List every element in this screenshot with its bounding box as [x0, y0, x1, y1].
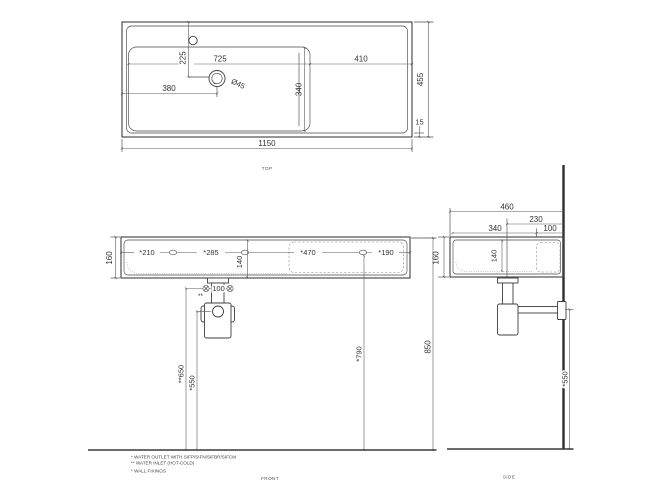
dim-label-550-side: *550	[561, 371, 570, 386]
top-view: 1150 455 15 725 410 340 380 225 Ø45 TOP	[122, 22, 434, 172]
trap-nut-front	[213, 306, 224, 317]
dim-label-340-top: 340	[295, 82, 304, 96]
bowl-bottom-stipple-side	[456, 262, 532, 272]
note-wall-fixings: * WALL FIXINGS	[131, 469, 166, 474]
trap-tailpipe-side	[503, 283, 514, 304]
note-water-outlet: * WATER OUTLET WITH SIFP/SIFN/SIFBR/SIFC…	[131, 455, 236, 460]
top-view-label: TOP	[262, 166, 273, 172]
hidden-shelf-line	[289, 242, 404, 273]
side-view-label: SIDE	[503, 475, 515, 481]
dim-label-140-side: 140	[490, 250, 499, 263]
dim-label-470: *470	[300, 248, 315, 257]
dim-label-550-front: *550	[188, 375, 197, 390]
front-view: 100 ** 160 *210 *285 *470 *190 140 **650…	[88, 237, 437, 482]
drain-flange	[209, 71, 225, 87]
dim-label-15: 15	[415, 118, 423, 127]
dim-label-140-front: 140	[235, 256, 244, 269]
wall-fixing-hole	[169, 250, 176, 255]
dim-label-230: 230	[529, 215, 543, 224]
dim-label-225: 225	[179, 51, 188, 65]
dim-label-210: *210	[139, 248, 154, 257]
notes-block: * WATER OUTLET WITH SIFP/SIFN/SIFBR/SIFC…	[131, 455, 236, 474]
wall-outlet-flange	[558, 302, 567, 320]
dim-label-drain-diameter: Ø45	[230, 77, 247, 91]
basin-rim-line	[127, 26, 408, 133]
water-inlet-symbol-left	[203, 285, 209, 291]
drain-flange-front	[208, 278, 229, 283]
tap-hole	[189, 36, 197, 44]
basin-outer-outline	[122, 22, 412, 137]
washbasin-technical-drawing: 1150 455 15 725 410 340 380 225 Ø45 TOP	[0, 0, 667, 500]
drain-flange-side	[498, 278, 519, 283]
dim-label-340-side: 340	[488, 224, 502, 233]
drawing-sheet: 1150 455 15 725 410 340 380 225 Ø45 TOP	[0, 0, 667, 500]
dim-label-460: 460	[500, 203, 514, 212]
dim-label-100-inlets: 100	[212, 284, 225, 293]
dim-label-1150: 1150	[258, 139, 276, 148]
dim-label-725: 725	[213, 55, 227, 64]
bottle-trap-side	[498, 304, 519, 335]
dim-label-160-front: 160	[105, 251, 114, 265]
basin-front-rim-line	[124, 240, 407, 275]
dim-label-100-side: 100	[543, 224, 557, 233]
hidden-shelf-line-side	[537, 243, 561, 273]
waste-pipe-to-wall	[518, 307, 560, 314]
dim-label-190: *190	[378, 248, 393, 257]
note-water-inlet: ** WATER INLET (HOT-COLD)	[131, 461, 195, 466]
dim-label-410: 410	[354, 55, 368, 64]
inlet-reference-mark: **	[198, 293, 204, 300]
wall-fixing-hole	[359, 250, 366, 255]
dim-label-790: *790	[355, 346, 364, 361]
bowl-bottom-stipple	[127, 262, 287, 274]
dim-label-160-side: 160	[432, 251, 441, 265]
dim-label-850: 850	[424, 340, 433, 354]
water-inlet-symbol-right	[227, 285, 233, 291]
dim-label-650: **650	[177, 365, 186, 383]
basin-front-outline	[121, 237, 410, 278]
front-view-label: FRONT	[261, 476, 279, 482]
dim-label-285: *285	[203, 248, 218, 257]
dim-label-380: 380	[162, 84, 176, 93]
side-view: 460 230 340 100 160 140 *550 SIDE	[432, 165, 574, 481]
dim-label-455: 455	[416, 72, 425, 86]
